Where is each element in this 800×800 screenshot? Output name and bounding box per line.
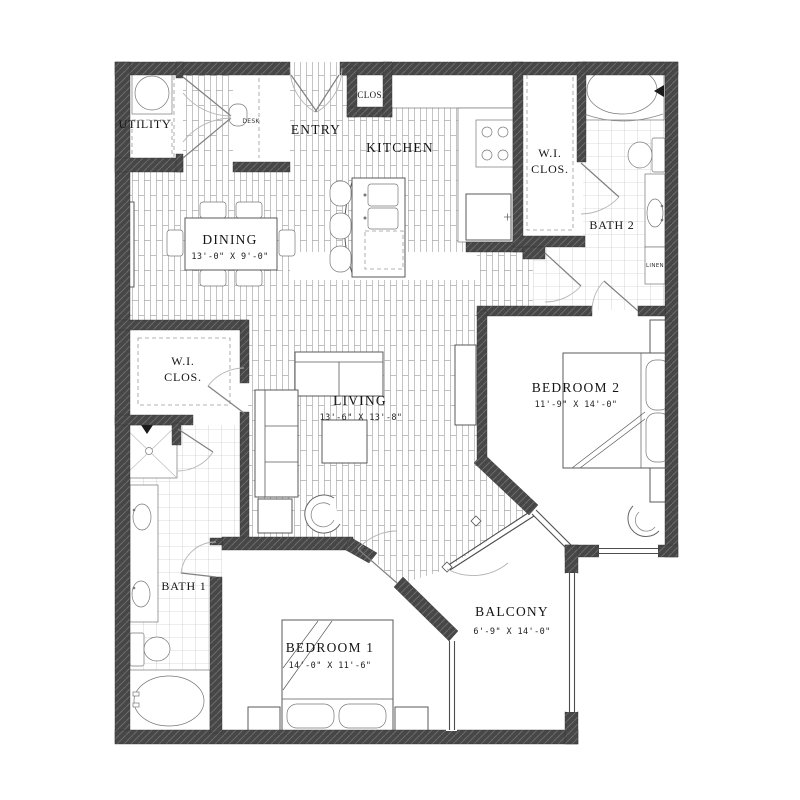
linen-label: LINEN [646,263,664,269]
wall-wic-left-top [115,320,248,330]
pillow [287,704,334,728]
burner [482,150,492,160]
bedroom2-dims: 11'-9" X 14'-0" [535,400,618,410]
bedroom1-label: BEDROOM 1 [286,640,374,655]
entry-label: ENTRY [291,122,341,137]
sink-1 [132,581,150,607]
faucet [364,217,367,220]
balcony-post-bottom [565,712,578,744]
bedroom2-window [599,545,658,557]
wall-bedroom2-top-a [477,306,592,316]
bar-stool [330,213,351,239]
living-dims: 13'-6" X 13'-8" [320,413,403,423]
dining-chair [167,230,183,256]
faucet [133,587,136,590]
wall-wic-left-right [240,320,249,383]
wall-bedroom1-diagonal [394,577,458,641]
burner [482,127,492,137]
faucet [364,194,367,197]
sink-1 [133,504,151,530]
wood-floor-hall-passage [477,252,537,310]
balcony-railing-diagonal [532,510,571,549]
wic-left-door [208,368,244,413]
floor-plan-drawing: UTILITY ENTRY CLOS. DESK KITCHEN W.I. CL… [0,0,800,800]
wall-hall-stub [523,247,545,259]
wall-top-left [115,62,290,75]
pillow [339,704,386,728]
wall-bedroom2-top-b [638,306,665,316]
wic-left-label-2: CLOS. [164,370,202,384]
nightstand [248,707,280,733]
washer-drum [135,76,169,110]
coffee-table [322,420,367,463]
balcony-dims: 6'-9" X 14'-0" [473,627,550,637]
balcony-label: BALCONY [475,604,549,619]
bedroom2-label: BEDROOM 2 [532,380,620,395]
bar-stool [330,246,351,272]
wall-right [665,62,678,557]
wall-wic-top-right [577,62,586,162]
toilet-1-bowl [144,637,170,661]
dining-label: DINING [202,232,257,247]
wall-bedroom1-left-b [210,577,222,733]
dining-dims: 13'-0" X 9'-0" [191,252,268,262]
wall-desk-nook [233,162,290,172]
bedroom1-window [446,641,457,731]
faucet [661,205,664,208]
wall-shower-stub [172,423,181,445]
faucet [661,219,664,222]
toilet-2-tank [652,138,665,172]
bath1-label: BATH 1 [161,579,206,593]
living-label: LIVING [333,393,387,408]
tv-console [455,345,476,425]
sink-2 [647,199,663,227]
wall-utility-bottom [115,158,183,172]
bathtub-1-basin [134,676,204,726]
wall-living-bottom [222,537,353,550]
balcony-railing-right [566,573,577,712]
wic-top-label-1: W.I. [538,146,561,160]
dining-chair [236,202,262,218]
toilet-2-bowl [628,142,652,168]
wic-left-label-1: W.I. [171,354,194,368]
wic-top-label-2: CLOS. [531,162,569,176]
toilet-1-tank [130,633,144,666]
wall-utility-stub [176,62,183,78]
dining-chair [236,270,262,286]
balcony-door-arc [447,563,508,576]
stove [476,120,513,167]
wall-wic-left-bottom [115,415,193,425]
wall-kitchen-right [513,62,523,252]
wall-bedroom1-left-a [210,538,222,545]
wall-bottom [115,730,578,744]
island-sink [368,208,398,229]
entry-closet-label: CLOS. [357,90,384,100]
dining-chair [200,202,226,218]
balcony-post-top [565,545,578,573]
accent-chair [628,506,659,537]
sectional-sofa [255,390,298,497]
shower-drain [146,448,153,455]
wall-bedroom2-bottom-b [658,545,678,557]
floor-plan: UTILITY ENTRY CLOS. DESK KITCHEN W.I. CL… [0,0,800,800]
utility-label: UTILITY [119,117,172,131]
burner [498,127,508,137]
dining-chair [279,230,295,256]
ottoman [258,499,292,533]
nightstand [395,707,428,733]
burner [498,150,508,160]
kitchen-label: KITCHEN [366,140,434,155]
desk-label: DESK [242,118,260,125]
faucet [133,509,136,512]
wall-bedroom2-left [477,311,487,462]
bathtub-1-faucet [133,692,139,696]
wall-wic-top-bottom [513,236,585,247]
dining-chair [200,270,226,286]
bath2-label: BATH 2 [589,218,634,232]
wall-living-left [240,412,249,538]
island-sink [368,184,398,206]
wall-utility-stub [176,154,183,172]
bedroom1-dims: 14'-0" X 11'-6" [289,661,372,671]
bar-stool [330,181,351,206]
bathtub-1-faucet [133,703,139,707]
